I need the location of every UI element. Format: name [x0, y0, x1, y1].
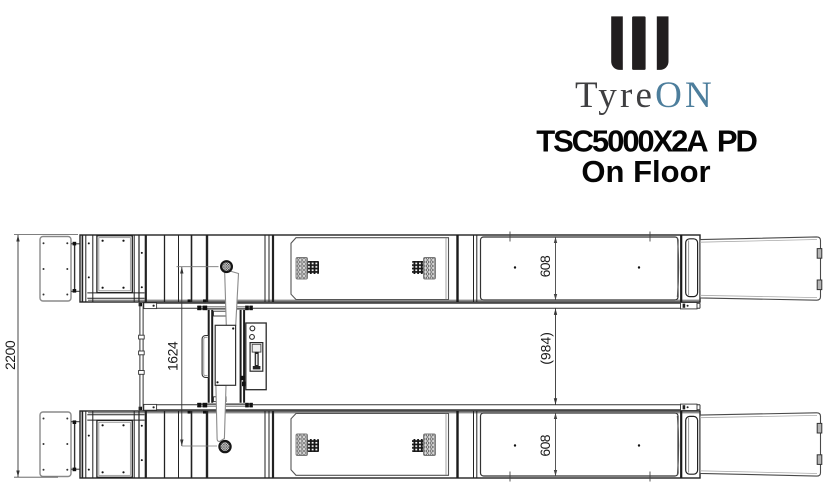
svg-text:TyreON: TyreON [575, 75, 715, 116]
svg-text:608: 608 [537, 434, 553, 456]
svg-text:(984): (984) [538, 332, 554, 365]
svg-text:2200: 2200 [2, 340, 18, 370]
svg-text:608: 608 [537, 255, 553, 277]
svg-text:1624: 1624 [165, 341, 181, 371]
svg-text:On Floor: On Floor [581, 154, 710, 189]
